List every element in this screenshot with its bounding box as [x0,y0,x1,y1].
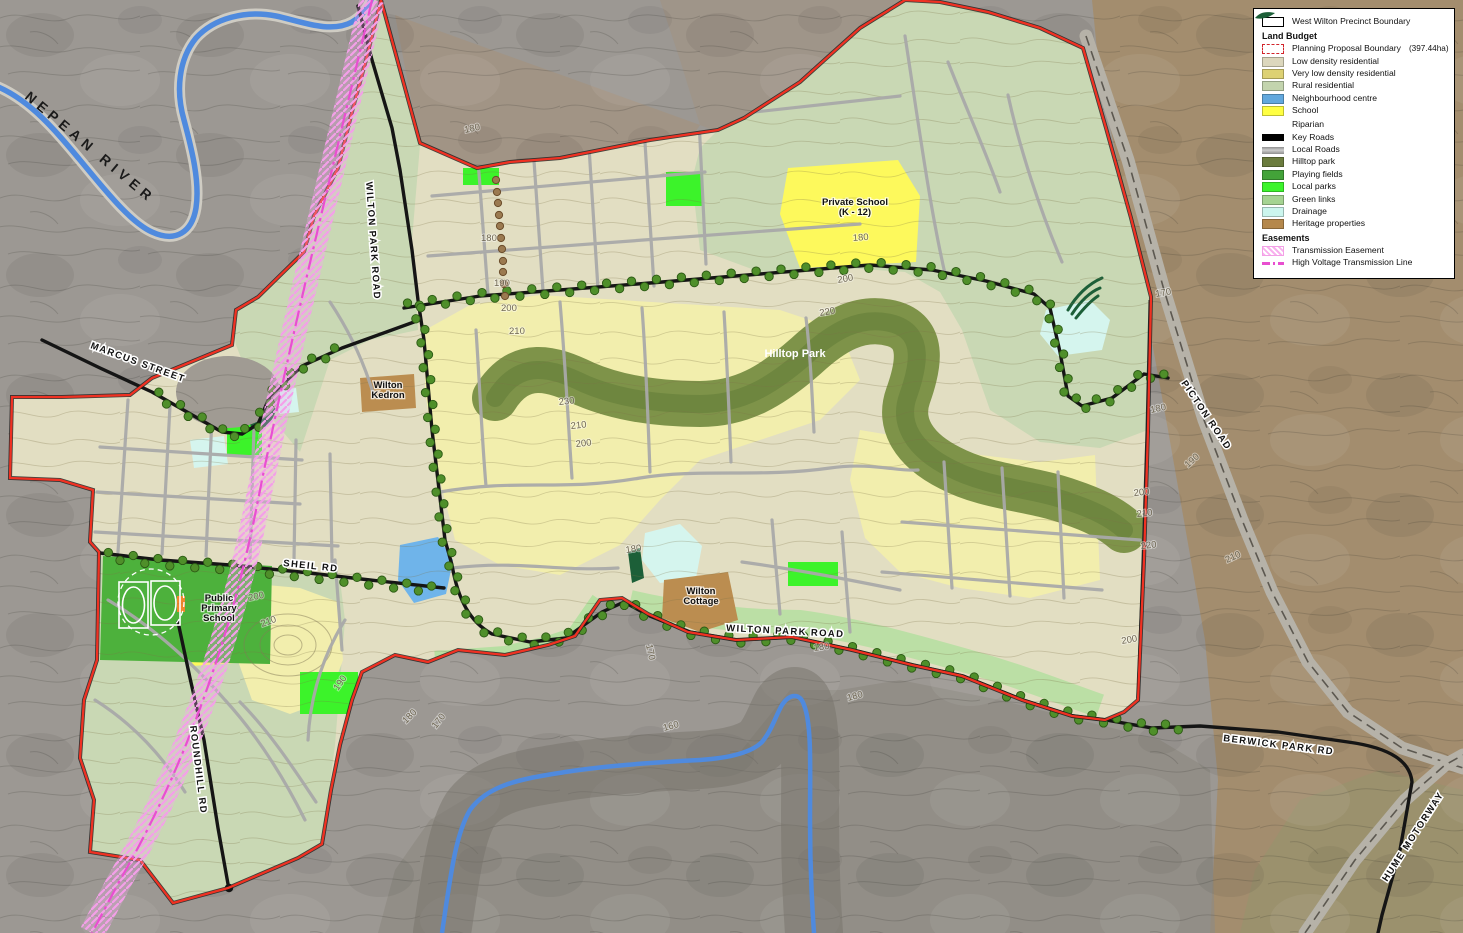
legend-label: Local parks [1292,182,1336,192]
contour-label: 220 [1140,539,1157,552]
street-tree-icon [640,282,648,290]
street-tree-icon [1106,398,1114,406]
street-tree-icon [216,565,224,573]
street-tree-icon [1072,394,1080,402]
street-tree-icon [427,375,435,383]
street-tree-icon [389,584,397,592]
contour-label: 190 [494,278,510,289]
street-tree-icon [265,570,273,578]
street-tree-icon [553,283,561,291]
street-tree-icon [462,610,470,618]
legend-row: School [1262,106,1446,116]
legend-swatch [1262,170,1284,180]
street-tree-icon [308,354,316,362]
legend-swatch [1262,182,1284,192]
contour-label: 210 [509,326,525,337]
hatch-pink-swatch-icon [1262,246,1284,256]
legend-panel: West Wilton Precinct BoundaryLand Budget… [1253,8,1455,279]
legend-label: Drainage [1292,207,1327,217]
contour-label: 210 [1136,507,1153,520]
legend-label: Green links [1292,195,1335,205]
street-tree-icon [466,296,474,304]
street-tree-icon [176,400,184,408]
legend-row: Low density residential [1262,57,1446,67]
street-tree-icon [542,633,550,641]
legend-row: Local Roads [1262,145,1446,155]
street-tree-icon [541,290,549,298]
street-tree-icon [1054,325,1062,333]
street-tree-icon [1064,374,1072,382]
street-tree-icon [340,578,348,586]
bar-black-swatch-icon [1262,134,1284,141]
street-tree-icon [715,276,723,284]
legend-row: Heritage properties [1262,219,1446,229]
public-primary-school-label: PublicPrimarySchool [201,593,237,624]
legend-row: Local parks [1262,182,1446,192]
street-tree-icon [426,438,434,446]
street-tree-icon [299,365,307,373]
street-tree-icon [403,579,411,587]
street-tree-icon [437,475,445,483]
street-tree-icon [518,633,526,641]
street-tree-icon [1025,285,1033,293]
street-tree-icon [1045,315,1053,323]
legend-label: Hilltop park [1292,157,1335,167]
street-tree-icon [802,263,810,271]
street-tree-icon [752,267,760,275]
legend-value: (397.44ha) [1409,44,1449,53]
legend-swatch [1262,207,1284,217]
street-tree-icon [429,400,437,408]
street-tree-icon [219,425,227,433]
street-tree-icon [206,425,214,433]
street-tree-icon [865,264,873,272]
street-tree-icon [1033,297,1041,305]
street-tree-icon [1174,726,1182,734]
dash-red-swatch-icon [1262,44,1284,54]
street-tree-icon [454,573,462,581]
street-tree-icon [528,285,536,293]
street-tree-icon [987,282,995,290]
contour-label: 230 [558,395,575,408]
street-tree-icon [365,581,373,589]
street-tree-icon [665,280,673,288]
contour-label: 200 [1133,486,1150,499]
street-tree-icon [606,601,614,609]
street-tree-icon [435,513,443,521]
legend-row: Playing fields [1262,170,1446,180]
legend-row: Very low density residential [1262,69,1446,79]
street-tree-icon [578,281,586,289]
street-tree-icon [877,259,885,267]
legend-label: Key Roads [1292,133,1334,143]
street-tree-icon [438,538,446,546]
street-tree-icon [677,273,685,281]
street-tree-icon [889,266,897,274]
street-tree-icon [421,325,429,333]
wilton-kedron-label: WiltonKedron [371,380,404,401]
legend-label: Low density residential [1292,57,1379,67]
street-tree-icon [652,275,660,283]
street-tree-icon [290,572,298,580]
street-tree-icon [602,279,610,287]
street-tree-icon [179,556,187,564]
street-tree-icon [516,292,524,300]
street-tree-icon [461,596,469,604]
street-tree-icon [1059,350,1067,358]
street-tree-icon [615,284,623,292]
street-tree-icon [1082,404,1090,412]
legend-heading: Easements [1262,233,1446,243]
street-tree-icon [198,413,206,421]
street-tree-icon [432,488,440,496]
legend-row: Key Roads [1262,133,1446,143]
legend-row: Hilltop park [1262,157,1446,167]
street-tree-icon [419,364,427,372]
street-tree-icon [815,268,823,276]
street-tree-icon [1114,386,1122,394]
street-tree-icon [428,295,436,303]
street-tree-icon [421,388,429,396]
legend-row: Riparian [1262,118,1446,130]
contour-label: 210 [570,419,587,432]
street-tree-icon [474,616,482,624]
riparian-swoosh-icon [1254,9,1276,21]
legend-swatch [1262,157,1284,167]
street-tree-icon [1055,363,1063,371]
street-tree-icon [412,315,420,323]
street-tree-icon [184,412,192,420]
street-tree-icon [1124,723,1132,731]
street-tree-icon [230,432,238,440]
street-tree-icon [1046,300,1054,308]
street-tree-icon [417,303,425,311]
legend-swatch [1262,219,1284,229]
street-tree-icon [424,351,432,359]
street-tree-icon [976,272,984,280]
street-tree-icon [443,524,451,532]
street-tree-icon [1001,279,1009,287]
legend-row: Rural residential [1262,81,1446,91]
street-tree-icon [429,463,437,471]
street-tree-icon [104,548,112,556]
street-tree-icon [1011,288,1019,296]
legend-label: Rural residential [1292,81,1354,91]
street-tree-icon [740,274,748,282]
street-tree-icon [702,271,710,279]
hilltop-park-label: Hilltop Park [764,348,826,360]
legend-label: Riparian [1292,120,1324,130]
street-tree-icon [690,278,698,286]
street-tree-icon [322,355,330,363]
street-tree-icon [417,339,425,347]
legend-label: Local Roads [1292,145,1340,155]
street-tree-icon [191,564,199,572]
contour-label: 180 [625,543,642,556]
legend-label: Heritage properties [1292,219,1365,229]
street-tree-icon [204,558,212,566]
legend-row: High Voltage Transmission Line [1262,258,1446,268]
street-tree-icon [1134,371,1142,379]
street-tree-icon [141,559,149,567]
street-tree-icon [353,573,361,581]
legend-swatch [1262,94,1284,104]
street-tree-icon [790,270,798,278]
street-tree-icon [1051,339,1059,347]
street-tree-icon [403,299,411,307]
street-tree-icon [1127,383,1135,391]
street-tree-icon [914,268,922,276]
street-tree-icon [434,450,442,458]
street-tree-icon [902,261,910,269]
street-tree-icon [448,548,456,556]
planning-map: NEPEAN RIVERMARCUS STREETWILTON PARK ROA… [0,0,1463,933]
street-tree-icon [116,556,124,564]
street-tree-icon [453,292,461,300]
street-tree-icon [963,276,971,284]
street-tree-icon [241,424,249,432]
street-tree-icon [431,425,439,433]
street-tree-icon [765,272,773,280]
street-tree-icon [1161,720,1169,728]
legend-swatch [1262,106,1284,116]
street-tree-icon [1160,370,1168,378]
legend-row: Green links [1262,195,1446,205]
legend-label: Transmission Easement [1292,246,1384,256]
street-tree-icon [480,629,488,637]
street-tree-icon [1092,395,1100,403]
legend-swatch [1262,69,1284,79]
street-tree-icon [441,300,449,308]
legend-swatch [1262,195,1284,205]
street-tree-icon [166,562,174,570]
legend-label: School [1292,106,1318,116]
street-tree-icon [852,259,860,267]
legend-row: Drainage [1262,207,1446,217]
street-tree-icon [378,576,386,584]
street-tree-icon [451,587,459,595]
street-tree-icon [478,288,486,296]
street-tree-icon [952,267,960,275]
legend-row: Neighbourhood centre [1262,94,1446,104]
street-tree-icon [598,611,606,619]
wilton-cottage-label: WiltonCottage [683,586,718,607]
street-tree-icon [777,265,785,273]
street-tree-icon [424,413,432,421]
street-tree-icon [1137,719,1145,727]
map-canvas: NEPEAN RIVERMARCUS STREETWILTON PARK ROA… [0,0,1463,933]
legend-swatch [1262,57,1284,67]
street-tree-icon [129,551,137,559]
street-tree-icon [927,263,935,271]
street-tree-icon [445,562,453,570]
street-tree-icon [1060,388,1068,396]
contour-label: 200 [501,303,517,314]
street-tree-icon [827,261,835,269]
street-tree-icon [494,628,502,636]
street-tree-icon [491,294,499,302]
street-tree-icon [315,575,323,583]
legend-row: Transmission Easement [1262,246,1446,256]
street-tree-icon [627,277,635,285]
contour-label: 180 [813,641,830,654]
legend-label: Planning Proposal Boundary [1292,44,1401,54]
street-tree-icon [154,554,162,562]
legend-body: West Wilton Precinct BoundaryLand Budget… [1262,17,1446,268]
street-tree-icon [727,269,735,277]
contour-label: 180 [852,232,869,244]
riparian-swatch-icon [1262,118,1284,130]
contour-label: 200 [575,437,592,450]
contour-label: 180 [481,233,497,244]
bar-gray-swatch-icon [1262,147,1284,154]
street-tree-icon [155,388,163,396]
legend-label: Neighbourhood centre [1292,94,1377,104]
street-tree-icon [1149,727,1157,735]
street-tree-icon [162,400,170,408]
legend-label: Playing fields [1292,170,1343,180]
street-tree-icon [590,286,598,294]
street-tree-icon [440,500,448,508]
legend-label: Very low density residential [1292,69,1396,79]
legend-swatch [1262,81,1284,91]
street-tree-icon [427,582,435,590]
legend-label: West Wilton Precinct Boundary [1292,17,1410,27]
street-tree-icon [504,637,512,645]
street-tree-icon [414,587,422,595]
street-tree-icon [938,271,946,279]
street-tree-icon [330,344,338,352]
line-pink-swatch-icon [1262,262,1284,265]
street-tree-icon [255,408,263,416]
legend-row: Planning Proposal Boundary(397.44ha) [1262,44,1446,54]
legend-row: West Wilton Precinct Boundary [1262,17,1446,27]
legend-heading: Land Budget [1262,31,1446,41]
street-tree-icon [566,288,574,296]
legend-label: High Voltage Transmission Line [1292,258,1412,268]
